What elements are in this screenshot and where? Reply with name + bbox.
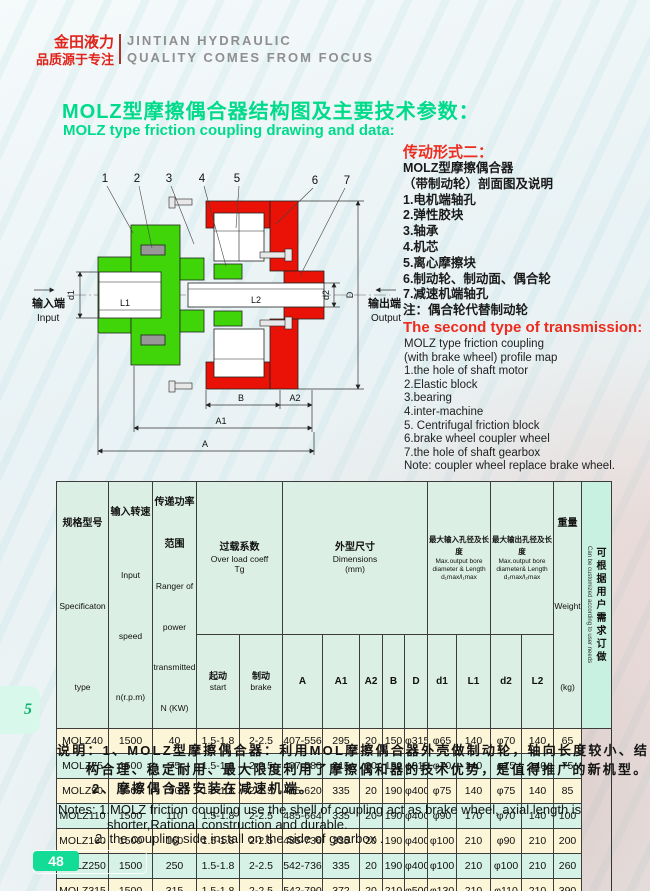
- subcol-A2: A2: [360, 635, 383, 729]
- list-line: 4.inter-machine: [404, 406, 615, 420]
- subcol-A: A: [283, 635, 323, 729]
- table-cell: 250: [153, 854, 197, 879]
- col-header-overload: 过载系数 Over load coeff Tg: [197, 482, 283, 635]
- shaft-bores: L1 L2: [99, 272, 324, 318]
- table-cell: MOLZ315: [57, 879, 109, 891]
- table-cell: 210: [457, 854, 491, 879]
- transmission-heading-cn: 传动形式二：: [403, 141, 493, 162]
- subcol-D: D: [405, 635, 428, 729]
- brand-name-en: JINTIAN HYDRAULIC: [127, 33, 292, 48]
- note-cn-line2: 构合理、稳定耐用、最大限度利用了摩擦偶和器的技术优势，是值得推广的新机型。: [86, 759, 648, 778]
- list-line: 4.机芯: [403, 240, 553, 256]
- subcol-L2: L2: [522, 635, 554, 729]
- transmission-list-en: MOLZ type friction coupling(with brake w…: [404, 338, 615, 474]
- dim-d2: d2: [321, 290, 331, 300]
- table-cell: φ75: [491, 779, 522, 804]
- dim-B: B: [238, 393, 244, 403]
- subcol-L1: L1: [457, 635, 491, 729]
- col-header-customizable: Can be customized according to user need…: [582, 482, 612, 729]
- brand-slogan-cn: 品质源于专注: [36, 49, 114, 68]
- list-line: 3.轴承: [403, 224, 553, 240]
- list-line: 5. Centrifugal friction block: [404, 420, 615, 434]
- col-header-input-bore: 最大输入孔径及长度 Max.output bore diameter & Len…: [428, 482, 491, 635]
- table-cell: 2-2.5: [240, 879, 283, 891]
- note-en-line1: Notes: 1.MOLZ friction coupling use the …: [58, 802, 581, 817]
- list-line: （带制动轮）剖面图及说明: [403, 177, 553, 193]
- table-cell: 210: [457, 829, 491, 854]
- list-line: MOLZ type friction coupling: [404, 338, 615, 352]
- note-cn-line3: 2、摩擦偶合器安装在减速机端。: [92, 778, 314, 797]
- dim-l2: L2: [251, 295, 261, 305]
- subcol-d1: d1: [428, 635, 457, 729]
- callout-6: 6: [312, 175, 318, 187]
- list-line: 注：偶合轮代替制动轮: [403, 303, 553, 319]
- brand-slogan-en: QUALITY COMES FROM FOCUS: [127, 50, 374, 65]
- note-en-line2: shorter,Rational construction and durabl…: [107, 817, 348, 832]
- table-cell: 315: [153, 879, 197, 891]
- table-cell: 190: [383, 854, 405, 879]
- table-cell: φ100: [428, 829, 457, 854]
- callout-4: 4: [199, 173, 206, 185]
- list-line: Note: coupler wheel replace brake wheel.: [404, 460, 615, 474]
- list-line: 7.the hole of shaft gearbox: [404, 447, 615, 461]
- table-cell: 20: [360, 854, 383, 879]
- table-cell: 200: [554, 829, 582, 854]
- input-label-en: Input: [37, 313, 59, 324]
- callout-7: 7: [344, 175, 350, 187]
- table-row: MOLZ31515003151.5-1.82-2.5542-7903722021…: [57, 879, 612, 891]
- elastic-block-top: [141, 245, 165, 255]
- table-cell: 1500: [109, 879, 153, 891]
- table-cell: 85: [554, 779, 582, 804]
- table-cell: 210: [522, 829, 554, 854]
- page-title-en: MOLZ type friction coupling drawing and …: [63, 122, 395, 139]
- table-cell: 542-736: [283, 854, 323, 879]
- table-cell: 190: [383, 779, 405, 804]
- page-number-badge: 48: [33, 851, 79, 871]
- col-header-output-bore: 最大输出孔径及长度 Max.output bore diameter& Leng…: [491, 482, 554, 635]
- col-header-speed: 输入转速 Input speed n(r.p.m): [109, 482, 153, 729]
- transmission-list-cn: MOLZ型摩擦偶合器（带制动轮）剖面图及说明1.电机端轴孔2.弹性胶块3.轴承4…: [403, 161, 553, 319]
- callout-2: 2: [134, 173, 140, 185]
- table-cell: 2-2.5: [240, 854, 283, 879]
- list-line: 1.电机端轴孔: [403, 193, 553, 209]
- chapter-tab: 5: [0, 686, 40, 734]
- table-cell: φ400: [405, 829, 428, 854]
- table-cell: φ75: [428, 779, 457, 804]
- table-cell: φ100: [491, 854, 522, 879]
- list-line: (with brake wheel) profile map: [404, 352, 615, 366]
- table-cell: 20: [360, 779, 383, 804]
- list-line: 6.brake wheel coupler wheel: [404, 433, 615, 447]
- col-header-spec: 规格型号 Specificaton type: [57, 482, 109, 729]
- table-cell: 390: [554, 879, 582, 891]
- output-label-cn: 输出端: [368, 296, 401, 310]
- callouts: 1 2 3 4 5 6 7: [102, 173, 350, 276]
- table-cell: φ400: [405, 854, 428, 879]
- subcol-A1: A1: [323, 635, 360, 729]
- subcol-start: 起动 start: [197, 635, 240, 729]
- table-cell: 542-790: [283, 879, 323, 891]
- input-label-cn: 输入端: [32, 296, 65, 310]
- subcol-B: B: [383, 635, 405, 729]
- table-cell: φ110: [491, 879, 522, 891]
- table-cell: φ100: [428, 854, 457, 879]
- chapter-number: 5: [24, 701, 32, 719]
- table-cell: 140: [457, 779, 491, 804]
- dimension-lines: d1 d2 D B A2 A1 A: [66, 201, 364, 455]
- table-cell: φ130: [428, 879, 457, 891]
- input-coupling-green: [98, 225, 242, 365]
- note-cn-line1: 说明：1、MOLZ型摩擦偶合器：利用MOL摩擦偶合器外壳做制动轮，轴向长度较小、…: [57, 740, 649, 759]
- col-header-power: 传递功率 范围 Ranger of power transmitted N (K…: [153, 482, 197, 729]
- col-header-dimensions: 外型尺寸 Dimensions (mm): [283, 482, 428, 635]
- list-line: 1.the hole of shaft motor: [404, 365, 615, 379]
- list-line: 2.弹性胶块: [403, 208, 553, 224]
- table-cell: φ500: [405, 879, 428, 891]
- list-line: MOLZ型摩擦偶合器: [403, 161, 553, 177]
- dim-A1: A1: [215, 416, 226, 426]
- table-cell: 20: [360, 879, 383, 891]
- dim-D: D: [345, 291, 355, 298]
- brand-divider: [119, 34, 121, 64]
- table-cell: 190: [383, 829, 405, 854]
- catalog-page: 金田液力 品质源于专注 JINTIAN HYDRAULIC QUALITY CO…: [0, 0, 650, 891]
- table-cell: 140: [522, 779, 554, 804]
- table-cell: φ400: [405, 779, 428, 804]
- callout-1: 1: [102, 173, 108, 185]
- table-cell: 372: [323, 879, 360, 891]
- list-line: 6.制动轮、制动面、偶合轮: [403, 272, 553, 288]
- table-cell: 335: [323, 854, 360, 879]
- callout-5: 5: [234, 173, 240, 185]
- table-cell: 1.5-1.8: [197, 879, 240, 891]
- dim-A: A: [202, 439, 208, 449]
- table-cell: 335: [323, 779, 360, 804]
- callout-3: 3: [166, 173, 172, 185]
- list-line: 3.bearing: [404, 392, 615, 406]
- dim-A2: A2: [289, 393, 300, 403]
- output-coupling-red: [206, 201, 324, 389]
- list-line: 2.Elastic block: [404, 379, 615, 393]
- subcol-d2: d2: [491, 635, 522, 729]
- table-cell: 210: [383, 879, 405, 891]
- table-cell: φ90: [491, 829, 522, 854]
- table-cell: 1.5-1.8: [197, 854, 240, 879]
- table-cell: 210: [522, 879, 554, 891]
- table-cell: 210: [522, 854, 554, 879]
- table-cell: 260: [554, 854, 582, 879]
- col-header-weight: 重量 Weight (kg): [554, 482, 582, 729]
- transmission-heading-en: The second type of transmission:: [403, 319, 642, 336]
- page-title-cn: MOLZ型摩擦偶合器结构图及主要技术参数：: [62, 95, 480, 124]
- list-line: 5.离心摩擦块: [403, 256, 553, 272]
- list-line: 7.减速机端轴孔: [403, 287, 553, 303]
- output-label-en: Output: [371, 313, 401, 324]
- dim-l1: L1: [120, 298, 130, 308]
- subcol-brake: 制动 brake: [240, 635, 283, 729]
- elastic-block-bottom: [141, 335, 165, 345]
- table-cell: 210: [457, 879, 491, 891]
- bolts: [169, 197, 292, 392]
- coupling-section-drawing: L1 L2 1 2 3 4 5 6 7: [28, 168, 412, 478]
- page-number: 48: [48, 853, 64, 869]
- note-en-line3: 2. the coupling side install on the side…: [95, 831, 383, 846]
- flow-labels: 输入端 Input 输出端 Output: [32, 290, 401, 324]
- dim-d1: d1: [66, 290, 76, 300]
